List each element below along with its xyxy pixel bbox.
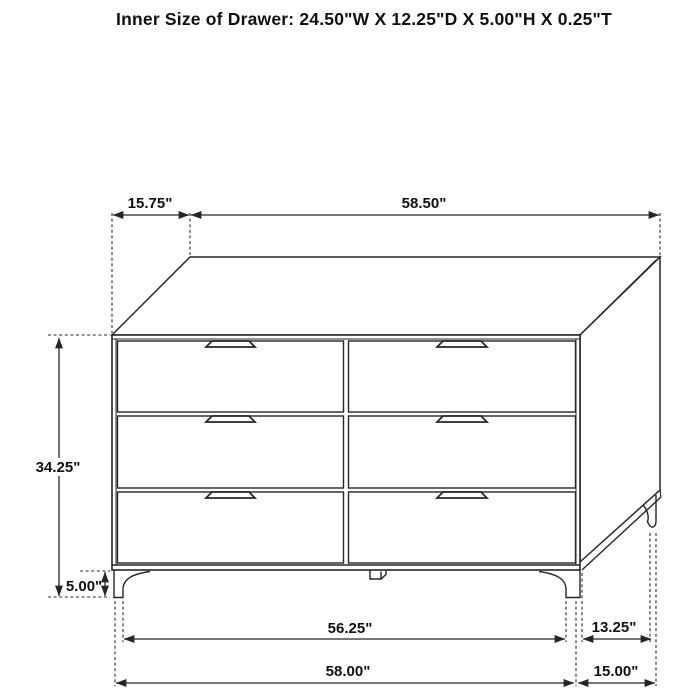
dimension-cabinet-height: 34.25" — [33, 338, 84, 596]
dimension-side-feet-span: 13.25" — [583, 619, 651, 639]
drawer-handle-icon — [206, 341, 255, 347]
dim-label-overall-width: 58.00" — [326, 663, 371, 680]
drawer-front-top-left — [118, 341, 344, 412]
dimension-feet-inner-span: 56.25" — [124, 620, 565, 639]
drawer-handle-icon — [437, 492, 487, 498]
front-right-leg — [539, 570, 580, 598]
drawer-front-middle-right — [349, 416, 576, 488]
dim-label-top-depth: 15.75" — [128, 195, 173, 212]
drawer-front-bottom-right — [349, 492, 576, 563]
drawer-handle-icon — [206, 492, 255, 498]
dimension-leg-height: 5.00" — [66, 572, 105, 596]
dim-label-overall-depth: 15.00" — [594, 663, 639, 680]
dim-label-side-feet-span: 13.25" — [592, 619, 637, 636]
dresser-body — [112, 257, 661, 598]
center-support-leg — [370, 571, 386, 580]
base-corner-line — [660, 490, 661, 497]
drawer-handle-icon — [437, 416, 487, 422]
dim-label-top-width: 58.50" — [402, 195, 447, 212]
drawer-front-middle-left — [118, 416, 344, 488]
dresser-dimension-diagram: 15.75" 58.50" 34.25" 5.00" 28.25" 9.00" … — [0, 0, 700, 700]
dim-label-leg-height: 5.00" — [66, 578, 102, 595]
dim-label-cabinet-height: 34.25" — [36, 459, 81, 476]
top-surface — [112, 257, 660, 335]
drawer-handle-icon — [206, 416, 255, 422]
dimension-top-width: 58.50" — [191, 195, 659, 215]
dimension-overall-depth: 15.00" — [578, 663, 655, 683]
dimension-overall-width: 58.00" — [116, 663, 574, 683]
dimension-top-depth: 15.75" — [113, 195, 189, 215]
dim-label-feet-inner-span: 56.25" — [328, 620, 373, 637]
drawer-front-bottom-left — [118, 492, 344, 563]
drawer-front-top-right — [349, 341, 576, 412]
front-left-leg — [114, 570, 150, 598]
drawer-handle-icon — [437, 341, 487, 347]
